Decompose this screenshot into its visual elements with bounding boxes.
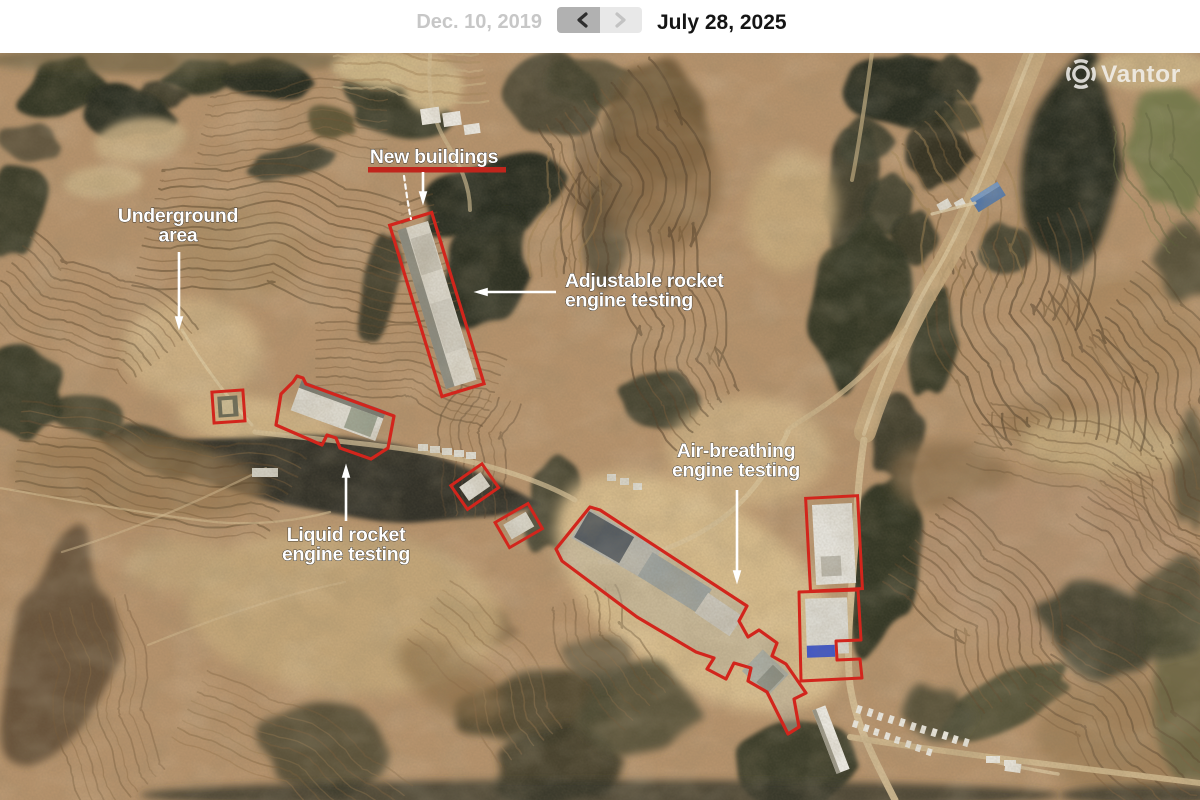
svg-text:Vantor: Vantor: [1101, 61, 1181, 88]
svg-text:Air-breathingengine testing: Air-breathingengine testing: [672, 440, 800, 482]
svg-text:Dec. 10, 2019: Dec. 10, 2019: [416, 11, 542, 33]
svg-text:New buildings: New buildings: [370, 146, 499, 168]
svg-text:July 28, 2025: July 28, 2025: [657, 11, 787, 34]
svg-text:Liquid rocketengine testing: Liquid rocketengine testing: [282, 524, 410, 566]
